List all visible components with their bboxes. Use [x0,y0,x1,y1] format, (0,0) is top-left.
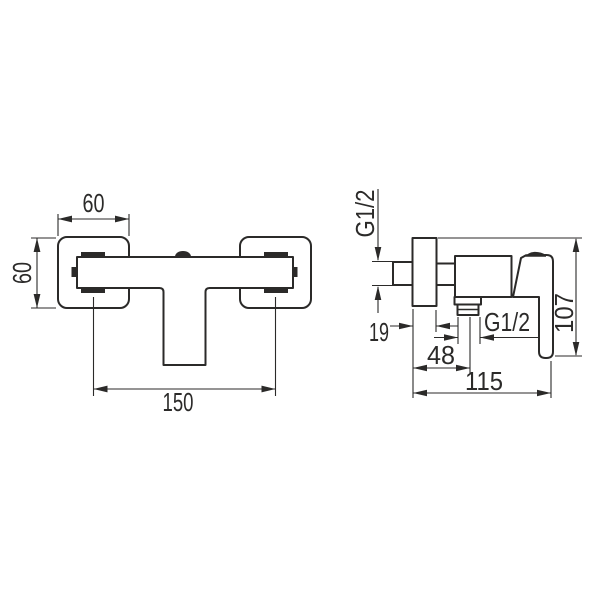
supply-neck-side [436,264,455,286]
side-view: G1/2 19 G1/2 48 115 [350,189,582,398]
dim-front-height-label: 60 [7,262,37,284]
mixer-body-side [455,256,512,297]
pipe-end-right [292,267,298,277]
dim-outlet-depth-label: 48 [427,340,455,370]
pipe-end-left [72,267,78,277]
dim-front-width-label: 60 [83,188,105,218]
shower-outlet-side [455,297,482,315]
seal-bottom-left [81,288,105,293]
dim-front-height: 60 [7,238,56,308]
dim-front-width: 60 [58,188,129,236]
dim-front-spacing-label: 150 [163,387,194,417]
seal-bottom-right [264,288,288,293]
seal-top-right [264,252,288,257]
dim-inlet-thread: G1/2 [350,189,395,313]
technical-drawing: 60 60 150 [0,0,600,600]
lever-grip-detail [526,252,547,257]
seal-top-left [81,252,105,257]
wall-plate-side [413,238,437,306]
technical-drawing-canvas: 60 60 150 [0,0,600,600]
front-view: 60 60 150 [7,188,311,417]
mixer-body-front [77,257,293,365]
inlet-nipple-side [393,262,413,285]
dim-wall-offset-label: 19 [369,317,389,347]
dim-total-depth-label: 115 [465,366,503,396]
cartridge-cap-front [175,251,191,257]
dim-total-height-label: 107 [549,293,579,333]
outlet-thread-label: G1/2 [484,307,530,337]
inlet-thread-label: G1/2 [350,190,380,238]
